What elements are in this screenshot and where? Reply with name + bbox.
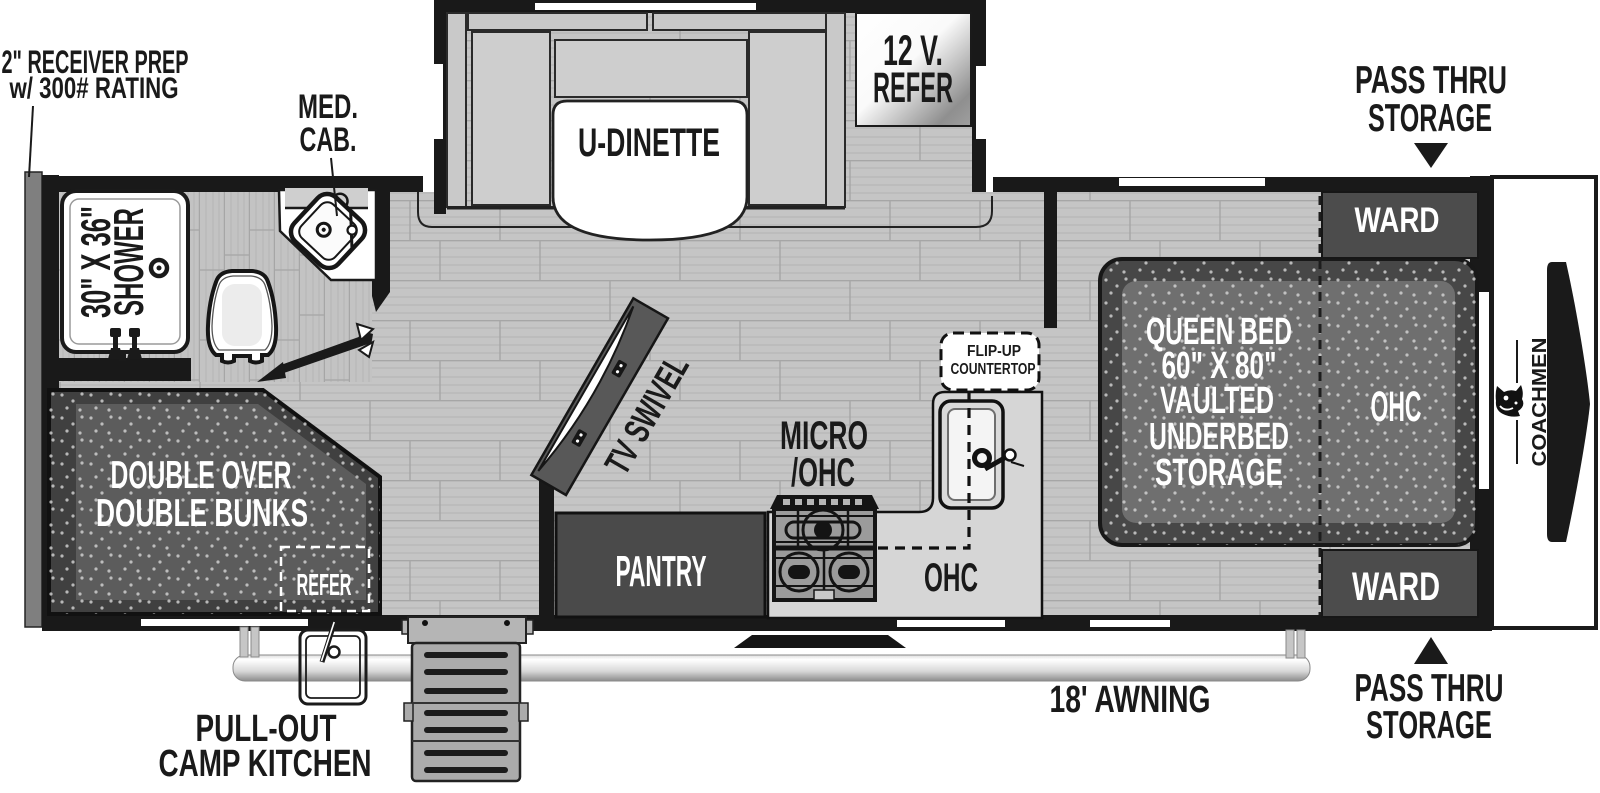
svg-text:w/ 300# RATING: w/ 300# RATING bbox=[9, 72, 179, 105]
svg-text:FLIP-UP: FLIP-UP bbox=[967, 343, 1021, 360]
svg-text:WARD: WARD bbox=[1355, 201, 1440, 240]
svg-text:REFER: REFER bbox=[297, 567, 352, 602]
svg-text:CAMP KITCHEN: CAMP KITCHEN bbox=[159, 743, 372, 785]
svg-text:OHC: OHC bbox=[1371, 383, 1422, 431]
svg-text:DOUBLE OVER: DOUBLE OVER bbox=[111, 454, 292, 497]
svg-text:18' AWNING: 18' AWNING bbox=[1050, 679, 1211, 721]
svg-text:COACHMEN: COACHMEN bbox=[1529, 338, 1551, 467]
svg-text:DOUBLE BUNKS: DOUBLE BUNKS bbox=[96, 492, 308, 535]
svg-text:STORAGE: STORAGE bbox=[1368, 97, 1492, 140]
svg-text:SHOWER: SHOWER bbox=[105, 208, 152, 316]
svg-text:U-DINETTE: U-DINETTE bbox=[578, 121, 720, 165]
svg-text:CAB.: CAB. bbox=[300, 121, 357, 159]
svg-text:STORAGE: STORAGE bbox=[1155, 452, 1283, 494]
svg-text:STORAGE: STORAGE bbox=[1366, 704, 1492, 747]
svg-text:/OHC: /OHC bbox=[791, 451, 855, 495]
svg-text:WARD: WARD bbox=[1352, 565, 1440, 609]
svg-text:OHC: OHC bbox=[924, 556, 978, 600]
svg-text:PASS THRU: PASS THRU bbox=[1355, 59, 1507, 102]
svg-text:PANTRY: PANTRY bbox=[616, 547, 707, 596]
svg-text:COUNTERTOP: COUNTERTOP bbox=[951, 361, 1036, 378]
svg-text:REFER: REFER bbox=[873, 64, 953, 112]
